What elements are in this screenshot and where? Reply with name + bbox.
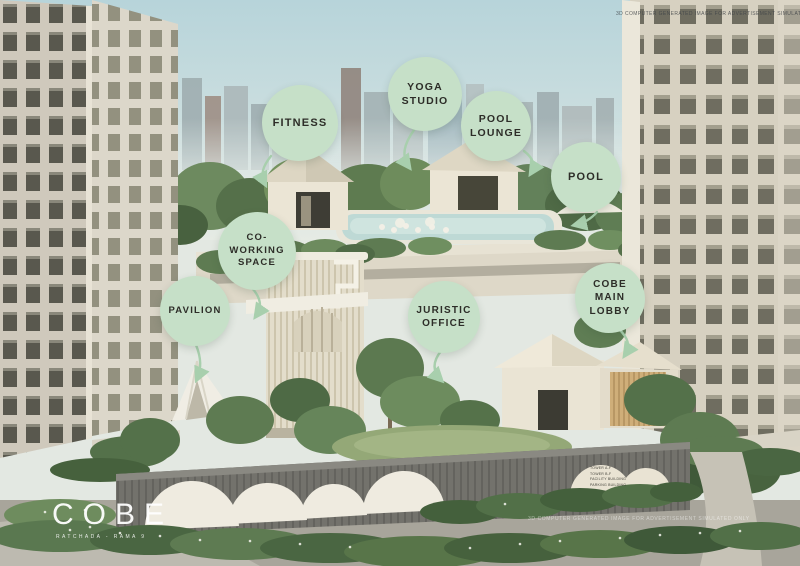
callout-label: CO- <box>246 232 267 245</box>
directory-sign-line: PARKING BUILDING <box>590 483 634 489</box>
brand-tagline: RATCHADA - RAMA 9 <box>56 534 146 540</box>
callout-label: COBE <box>593 278 627 292</box>
callout-label: SPACE <box>238 257 276 270</box>
left-tower <box>0 0 178 458</box>
callout-pool-lounge: POOL LOUNGE <box>461 91 531 161</box>
callout-label: LOBBY <box>590 305 631 319</box>
callout-yoga-studio: YOGA STUDIO <box>388 57 462 131</box>
callout-label: POOL <box>479 112 514 126</box>
callout-label: FITNESS <box>273 116 328 131</box>
callout-co-working-space: CO- WORKING SPACE <box>218 212 296 290</box>
callout-label: OFFICE <box>422 317 466 331</box>
callout-juristic-office: JURISTIC OFFICE <box>408 281 480 353</box>
callout-label: POOL <box>568 170 604 185</box>
callout-fitness: FITNESS <box>262 85 338 161</box>
callout-pavilion: PAVILION <box>160 276 230 346</box>
callout-label: WORKING <box>229 245 284 258</box>
callout-label: MAIN <box>595 291 625 305</box>
callout-label: LOUNGE <box>470 126 522 140</box>
callout-pool: POOL <box>551 142 621 212</box>
rendering-canvas: FITNESS YOGA STUDIO POOL LOUNGE POOL CO-… <box>0 0 800 566</box>
disclaimer-top: 3D COMPUTER GENERATED IMAGE FOR ADVERTIS… <box>616 11 800 17</box>
callout-cobe-main-lobby: COBE MAIN LOBBY <box>575 263 645 333</box>
brand-logo: COBE <box>52 498 173 532</box>
callout-label: PAVILION <box>168 305 221 318</box>
directory-sign: TOWER A-F TOWER B-F FACILITY BUILDING PA… <box>590 466 634 488</box>
callout-label: YOGA <box>407 80 443 94</box>
callout-label: JURISTIC <box>416 304 471 318</box>
callout-label: STUDIO <box>402 94 449 108</box>
disclaimer-bottom: 3D COMPUTER GENERATED IMAGE FOR ADVERTIS… <box>528 516 750 522</box>
